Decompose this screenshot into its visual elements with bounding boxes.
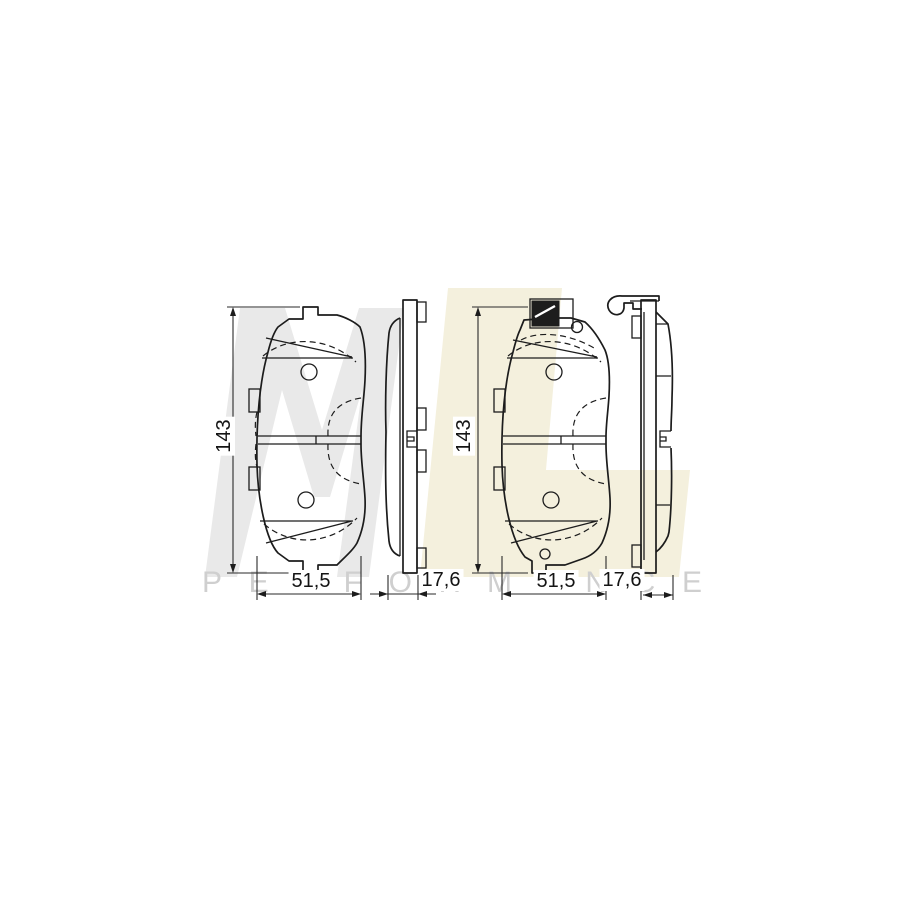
dim-label-thickness-outer: 17,6 [419, 569, 464, 591]
dim-label-height-inner: 143 [453, 416, 475, 455]
retaining-spring-clip [608, 296, 659, 315]
dimension-height-inner [472, 307, 528, 573]
dim-label-width-inner: 51,5 [534, 570, 579, 592]
brake-pad-technical-drawing [0, 0, 900, 900]
view-pad-side-inner [608, 296, 673, 573]
dim-label-width-outer: 51,5 [289, 570, 334, 592]
view-pad-front-outer [249, 307, 365, 573]
wear-indicator-sensor [530, 299, 573, 328]
brake-pad-product-drawing: M L PERFORMANCE [0, 0, 900, 900]
dimension-height-outer [227, 307, 300, 573]
view-pad-front-inner [494, 299, 610, 573]
dim-label-thickness-inner: 17,6 [600, 569, 645, 591]
dimension-thickness-inner [641, 575, 673, 600]
dim-label-height-outer: 143 [213, 416, 235, 455]
view-pad-side-outer [386, 300, 426, 573]
